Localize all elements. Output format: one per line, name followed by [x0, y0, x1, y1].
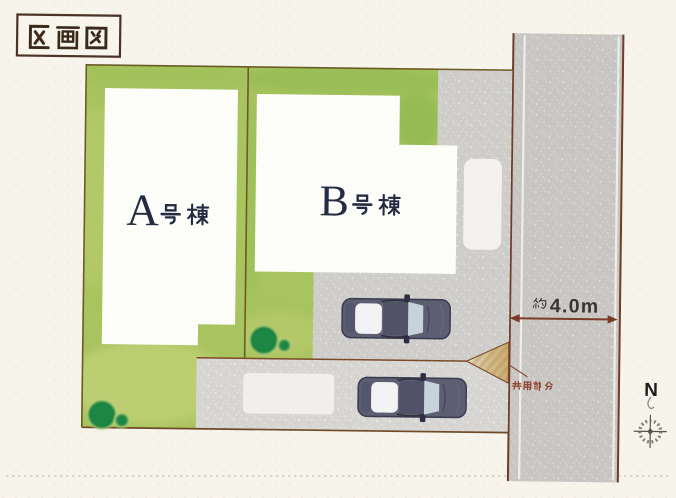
svg-text:4.0m: 4.0m: [550, 295, 600, 318]
svg-text:B: B: [319, 176, 349, 225]
svg-text:A: A: [126, 185, 160, 235]
